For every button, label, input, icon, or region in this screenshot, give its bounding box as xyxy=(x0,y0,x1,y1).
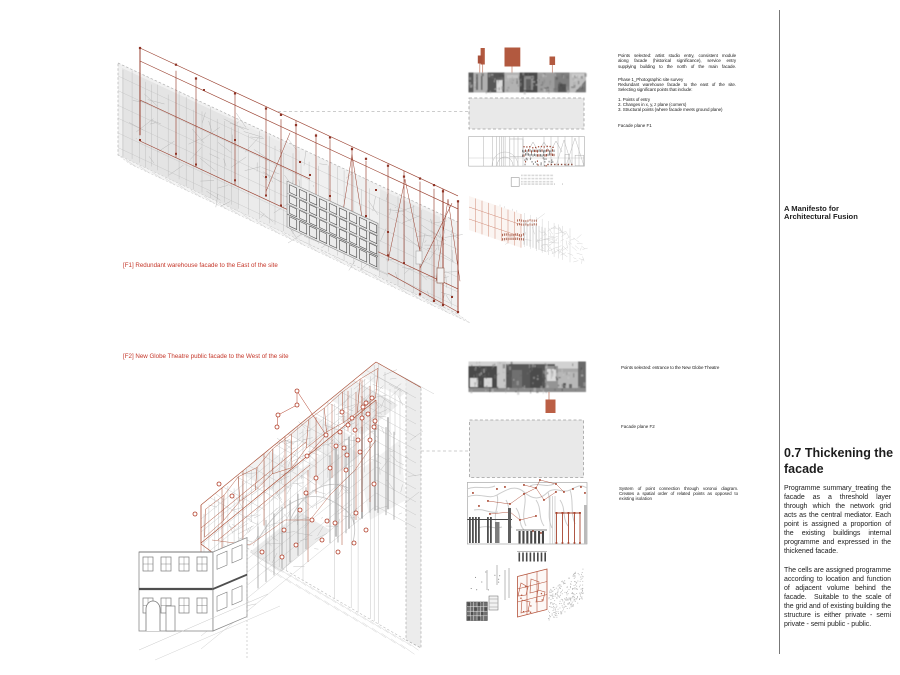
svg-text:[F2] New Globe Theatre public: [F2] New Globe Theatre public facade to … xyxy=(123,353,289,360)
svg-text:[F1] Redundant warehouse facad: [F1] Redundant warehouse facade to the E… xyxy=(123,262,278,269)
